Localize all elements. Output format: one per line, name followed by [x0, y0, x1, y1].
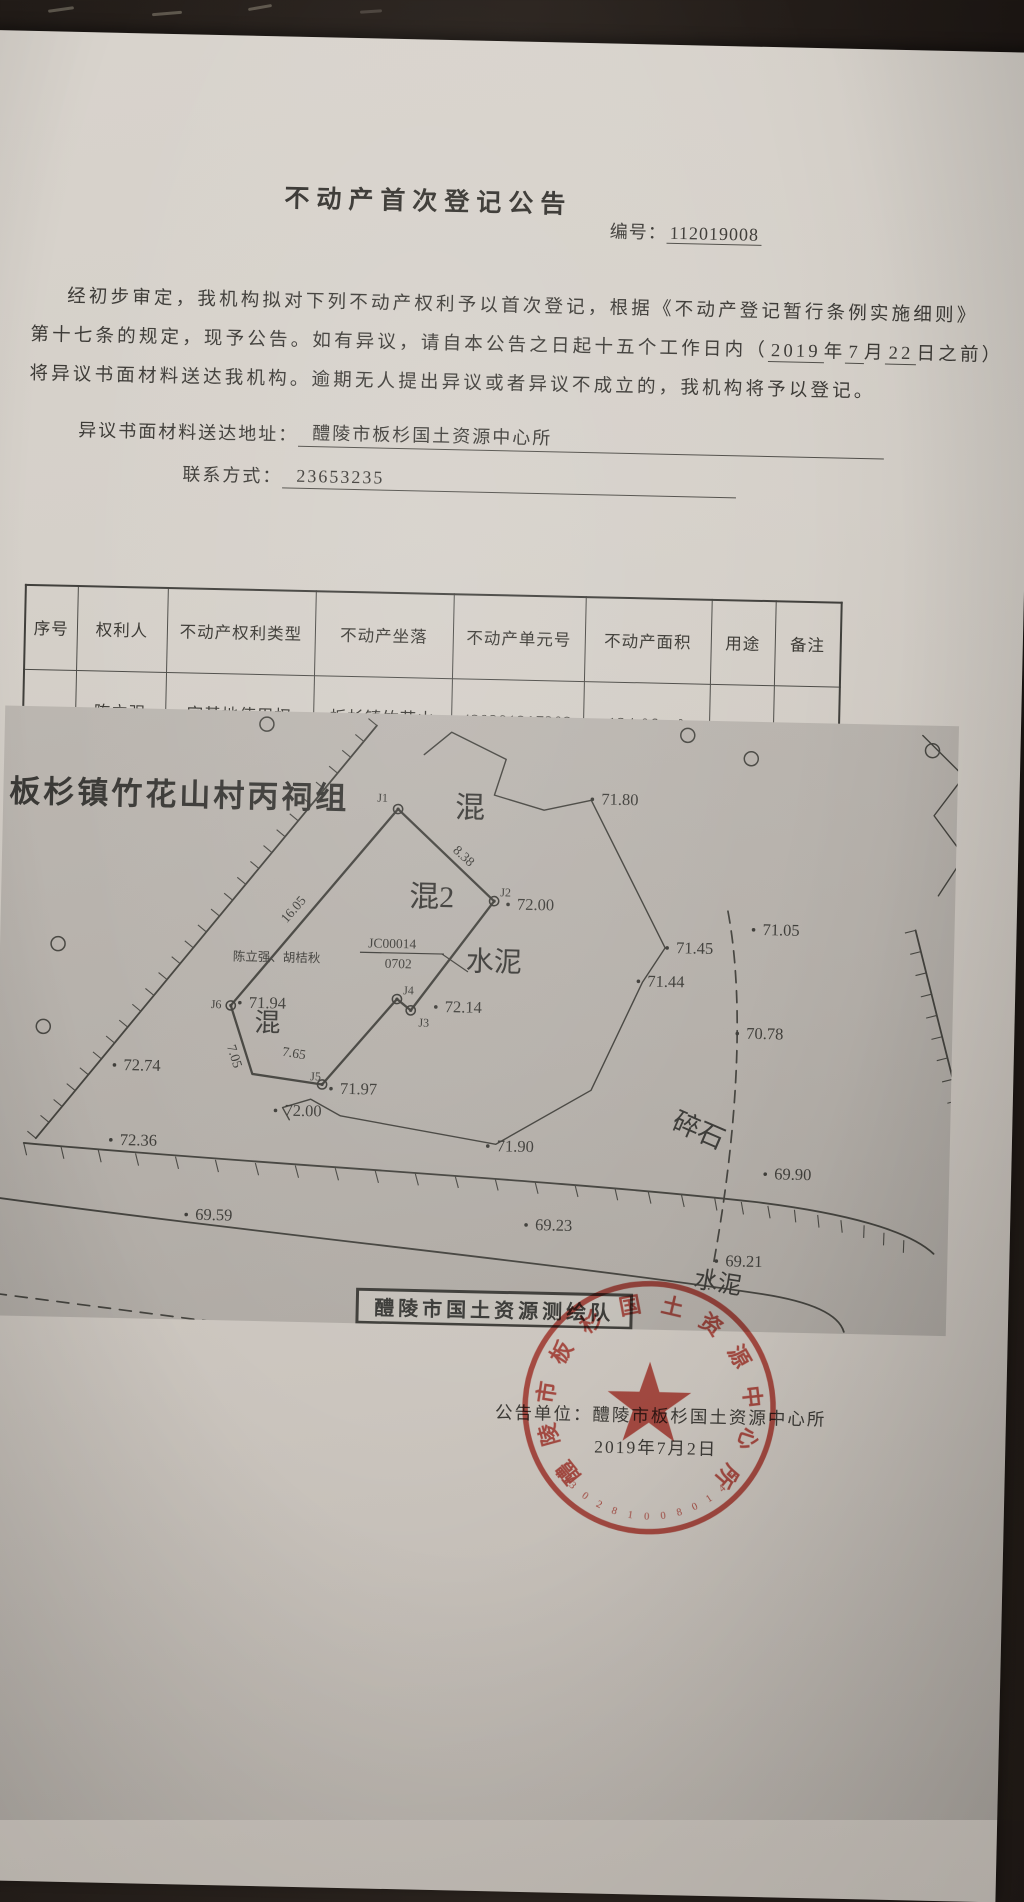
land-type-label: 碎石 — [668, 1106, 729, 1155]
elevation-label: 71.05 — [762, 920, 800, 940]
elevation-dot — [665, 946, 669, 950]
elevation-dot — [109, 1138, 113, 1142]
elevation-dot — [752, 928, 756, 932]
elevation-label: 71.97 — [340, 1079, 378, 1099]
hatch-tick — [119, 1020, 128, 1027]
paragraph-line-1: 经初步审定，我机构拟对下列不动产权利予以首次登记，根据《不动产登记暂行条例实施细… — [31, 281, 979, 328]
parcel-owner-label: 陈立强、胡桔秋 — [233, 948, 321, 965]
elevation-dot — [184, 1213, 188, 1217]
hatch-tick — [768, 1206, 771, 1218]
hatch-tick — [23, 1143, 26, 1155]
elevation-dot — [113, 1063, 117, 1067]
stitch-mark — [152, 11, 182, 17]
elevation-dot — [434, 1005, 438, 1009]
parcel-code-bottom: 0702 — [385, 956, 412, 972]
seal-number-digit: 2 — [594, 1499, 604, 1511]
elevation-label: 69.23 — [535, 1215, 573, 1235]
elevation-dot — [637, 979, 641, 983]
hatch-tick — [175, 1157, 179, 1169]
col-header-remark: 备注 — [774, 601, 842, 686]
seal-number-digit: 0 — [644, 1512, 649, 1523]
deadline-sep-month: 月 — [864, 343, 886, 363]
hatch-tick — [263, 846, 272, 853]
hatch-tick — [132, 1004, 141, 1011]
elevation-dot — [735, 1032, 739, 1036]
hatch-tick — [67, 1084, 76, 1091]
hatch-tick — [681, 1195, 684, 1207]
hatch-tick — [342, 750, 351, 757]
elevation-label: 71.45 — [676, 938, 714, 958]
seal-number-digit: 5 — [728, 1471, 740, 1482]
hatch-tick — [135, 1153, 139, 1165]
col-header-location: 不动产坐落 — [314, 591, 454, 678]
elevation-label: 72.00 — [284, 1101, 322, 1121]
footer-date: 2019年7月2日 — [594, 1433, 718, 1461]
hatch-tick — [145, 988, 154, 995]
road-curve-upper — [22, 1143, 936, 1254]
seal-ring-char: 所 — [710, 1459, 743, 1492]
cadastral-map: 板杉镇竹花山村丙祠组71.8072.0071.4571.4471.0570.78… — [0, 705, 959, 1336]
col-header-right-type: 不动产权利类型 — [166, 588, 316, 675]
hatch-tick — [172, 957, 181, 964]
hatch-tick — [926, 1015, 937, 1018]
seal-number-digit: 0 — [580, 1490, 591, 1502]
road-edge-right — [909, 930, 959, 1214]
hatch-tick — [98, 1150, 101, 1162]
hatch-tick — [947, 1100, 958, 1103]
hatch-tick — [255, 1163, 259, 1175]
hatch-tick — [495, 1178, 499, 1190]
hatch-tick — [714, 1198, 717, 1210]
elevation-label: 69.90 — [774, 1164, 812, 1184]
control-point-circle — [51, 937, 65, 951]
elevation-dot — [763, 1172, 767, 1176]
elevation-dot — [329, 1087, 333, 1091]
hatch-tick — [355, 734, 364, 741]
seal-number-digit: 0 — [690, 1501, 699, 1513]
map-labels: 板杉镇竹花山村丙祠组71.8072.0071.4571.4471.0570.78… — [0, 774, 820, 1302]
hatch-tick — [158, 973, 167, 980]
hatch-tick — [61, 1146, 64, 1158]
col-header-seq: 序号 — [24, 585, 78, 670]
hatch-tick — [80, 1068, 89, 1075]
hatch-tick — [375, 1171, 379, 1183]
dashed-boundary-bottom — [0, 1293, 310, 1334]
footer-unit-value: 醴陵市板杉国土资源中心所 — [592, 1404, 826, 1429]
control-point-circle — [681, 728, 695, 742]
edge-length: 8.38 — [450, 842, 478, 869]
hatch-tick — [575, 1185, 579, 1197]
seal-ring-char: 源 — [723, 1341, 756, 1373]
seal-ring-char: 醴 — [552, 1456, 585, 1489]
deadline-day: 22 — [885, 344, 916, 366]
seal-number-digit: 8 — [675, 1507, 683, 1519]
elevation-label: 72.00 — [517, 895, 555, 915]
elevation-label: 69.59 — [195, 1205, 233, 1225]
parcel-label-leader — [442, 954, 468, 972]
building-outline-right — [919, 735, 959, 896]
hatch-tick — [953, 1122, 959, 1125]
hatch-tick — [215, 1160, 219, 1172]
hatch-tick — [910, 951, 921, 954]
photo-background: { "doc": { "title": "不动产首次登记公告", "no_lab… — [0, 0, 1024, 1820]
boundary-point-label: J1 — [377, 791, 388, 805]
land-type-label: 混 — [254, 1008, 281, 1038]
hatch-tick — [535, 1181, 539, 1193]
control-point-circle — [36, 1019, 50, 1033]
hatch-tick — [224, 893, 233, 900]
hatch-tick — [415, 1173, 419, 1185]
hatch-tick — [276, 830, 285, 837]
elevation-label: 72.14 — [445, 997, 483, 1017]
hatch-tick — [817, 1215, 819, 1228]
boundary-point-label: J2 — [500, 885, 511, 899]
doc-number-value: 112019008 — [666, 223, 762, 246]
edge-length: 7.65 — [281, 1044, 307, 1063]
contact-value: 23653235 — [282, 465, 736, 498]
doc-number-label: 编号： — [610, 222, 667, 243]
hatch-tick — [648, 1191, 651, 1203]
boundary-point-label: J6 — [211, 997, 222, 1011]
hatch-tick — [931, 1037, 942, 1040]
paragraph-line-2-text: 第十七条的规定，现予公告。如有异议，请自本公告之日起十五个工作日内（ — [30, 325, 768, 361]
land-type-label: 混 — [455, 791, 486, 825]
parcel-code-top: JC00014 — [368, 935, 417, 951]
footer-unit-line: 公告单位：醴陵市板杉国土资源中心所 — [495, 1399, 827, 1431]
hatch-tick — [905, 930, 916, 933]
land-type-label: 水泥 — [465, 946, 522, 979]
seal-number: 4302810080145 — [554, 1468, 740, 1525]
stitch-mark — [360, 9, 382, 14]
hatch-tick — [106, 1036, 115, 1043]
parcel-code-divider — [360, 952, 444, 954]
hatch-tick — [211, 909, 220, 916]
elevation-dot — [486, 1144, 490, 1148]
hatch-tick — [916, 973, 927, 976]
elevation-dot — [524, 1223, 528, 1227]
hatch-tick — [329, 766, 338, 773]
elevation-label: 72.36 — [120, 1130, 158, 1150]
stitch-mark — [48, 6, 74, 13]
hatch-tick — [185, 941, 194, 948]
hatch-tick — [455, 1176, 459, 1188]
seal-number-digit: 1 — [627, 1510, 634, 1522]
stitch-mark — [248, 4, 272, 11]
boundary-point-label: J3 — [418, 1016, 429, 1030]
hatch-tick — [937, 1058, 948, 1061]
contact-line: 联系方式：23653235 — [182, 460, 736, 498]
hatch-tick — [237, 877, 246, 884]
paragraph-line-3: 将异议书面材料送达我机构。逾期无人提出异议或者异议不成立的，我机构将予以登记。 — [29, 359, 876, 403]
elevation-dot — [238, 1001, 242, 1005]
elevation-dot — [506, 903, 510, 907]
seal-number-digit: 1 — [704, 1493, 714, 1505]
hatch-tick — [335, 1168, 339, 1180]
deadline-year: 2019 — [768, 341, 824, 363]
footer-unit-label: 公告单位： — [495, 1402, 593, 1424]
address-line: 异议书面材料送达地址：醴陵市板杉国土资源中心所 — [78, 414, 884, 460]
deadline-month: 7 — [845, 343, 864, 364]
land-type-label: 水泥 — [692, 1266, 744, 1300]
deadline-suffix: 日之前） — [916, 344, 1003, 366]
address-label: 异议书面材料送达地址： — [78, 420, 298, 445]
land-type-label: 混2 — [409, 880, 455, 914]
doc-number-line: 编号：112019008 — [609, 218, 762, 247]
elevation-label: 71.90 — [497, 1136, 535, 1156]
contact-label: 联系方式： — [182, 464, 282, 486]
control-point-circle — [744, 752, 758, 766]
seal-number-digit: 4 — [555, 1468, 567, 1479]
edge-length: 7.05 — [224, 1043, 246, 1070]
paragraph-line-2: 第十七条的规定，现予公告。如有异议，请自本公告之日起十五个工作日内（2019年7… — [30, 320, 1004, 367]
hatch-tick — [198, 925, 207, 932]
deadline-sep-year: 年 — [824, 342, 846, 362]
col-header-usage: 用途 — [710, 600, 776, 685]
hatch-tick — [942, 1079, 953, 1082]
col-header-area: 不动产面积 — [584, 597, 712, 684]
hatch-tick — [368, 719, 377, 726]
hatch-tick — [295, 1166, 299, 1178]
hatch-tick — [615, 1188, 618, 1200]
boundary-point-label: J4 — [403, 983, 414, 997]
dashed-boundary-right — [709, 911, 740, 1289]
building-outline-top — [423, 732, 593, 812]
hatch-tick — [27, 1131, 36, 1138]
map-drawing: 板杉镇竹花山村丙祠组71.8072.0071.4571.4471.0570.78… — [0, 705, 959, 1336]
hatch-tick — [40, 1115, 49, 1122]
hatch-tick — [958, 1143, 959, 1146]
survey-control-circles — [36, 712, 940, 1052]
elevation-label: 70.78 — [746, 1024, 784, 1044]
elevation-dot — [274, 1109, 278, 1113]
hatch-tick — [741, 1202, 744, 1214]
paper-sheet: 不动产首次登记公告 编号：112019008 经初步审定，我机构拟对下列不动产权… — [0, 30, 1024, 1902]
hatch-tick — [921, 994, 932, 997]
seal-number-digit: 3 — [566, 1480, 577, 1492]
control-point-circle — [260, 717, 274, 731]
col-header-unit: 不动产单元号 — [452, 594, 586, 681]
page-title: 不动产首次登记公告 — [0, 172, 869, 227]
hatch-tick — [841, 1220, 843, 1233]
elevation-label: 71.44 — [647, 972, 685, 992]
address-value: 醴陵市板杉国土资源中心所 — [298, 419, 884, 460]
elevation-label: 71.80 — [601, 789, 639, 809]
hatch-tick — [794, 1210, 796, 1223]
hatch-tick — [93, 1052, 102, 1059]
seal-ring-char: 板 — [545, 1336, 578, 1369]
map-title: 板杉镇竹花山村丙祠组 — [9, 774, 350, 816]
hatch-tick — [250, 861, 259, 868]
seal-number-digit: 4 — [717, 1483, 729, 1495]
elevation-label: 69.21 — [725, 1251, 763, 1271]
elevation-label: 72.74 — [123, 1055, 161, 1075]
hatch-tick — [53, 1099, 62, 1106]
seal-number-digit: 8 — [610, 1505, 618, 1517]
boundary-point-label: J5 — [310, 1069, 321, 1083]
col-header-holder: 权利人 — [76, 586, 168, 672]
seal-number-digit: 0 — [660, 1510, 667, 1522]
